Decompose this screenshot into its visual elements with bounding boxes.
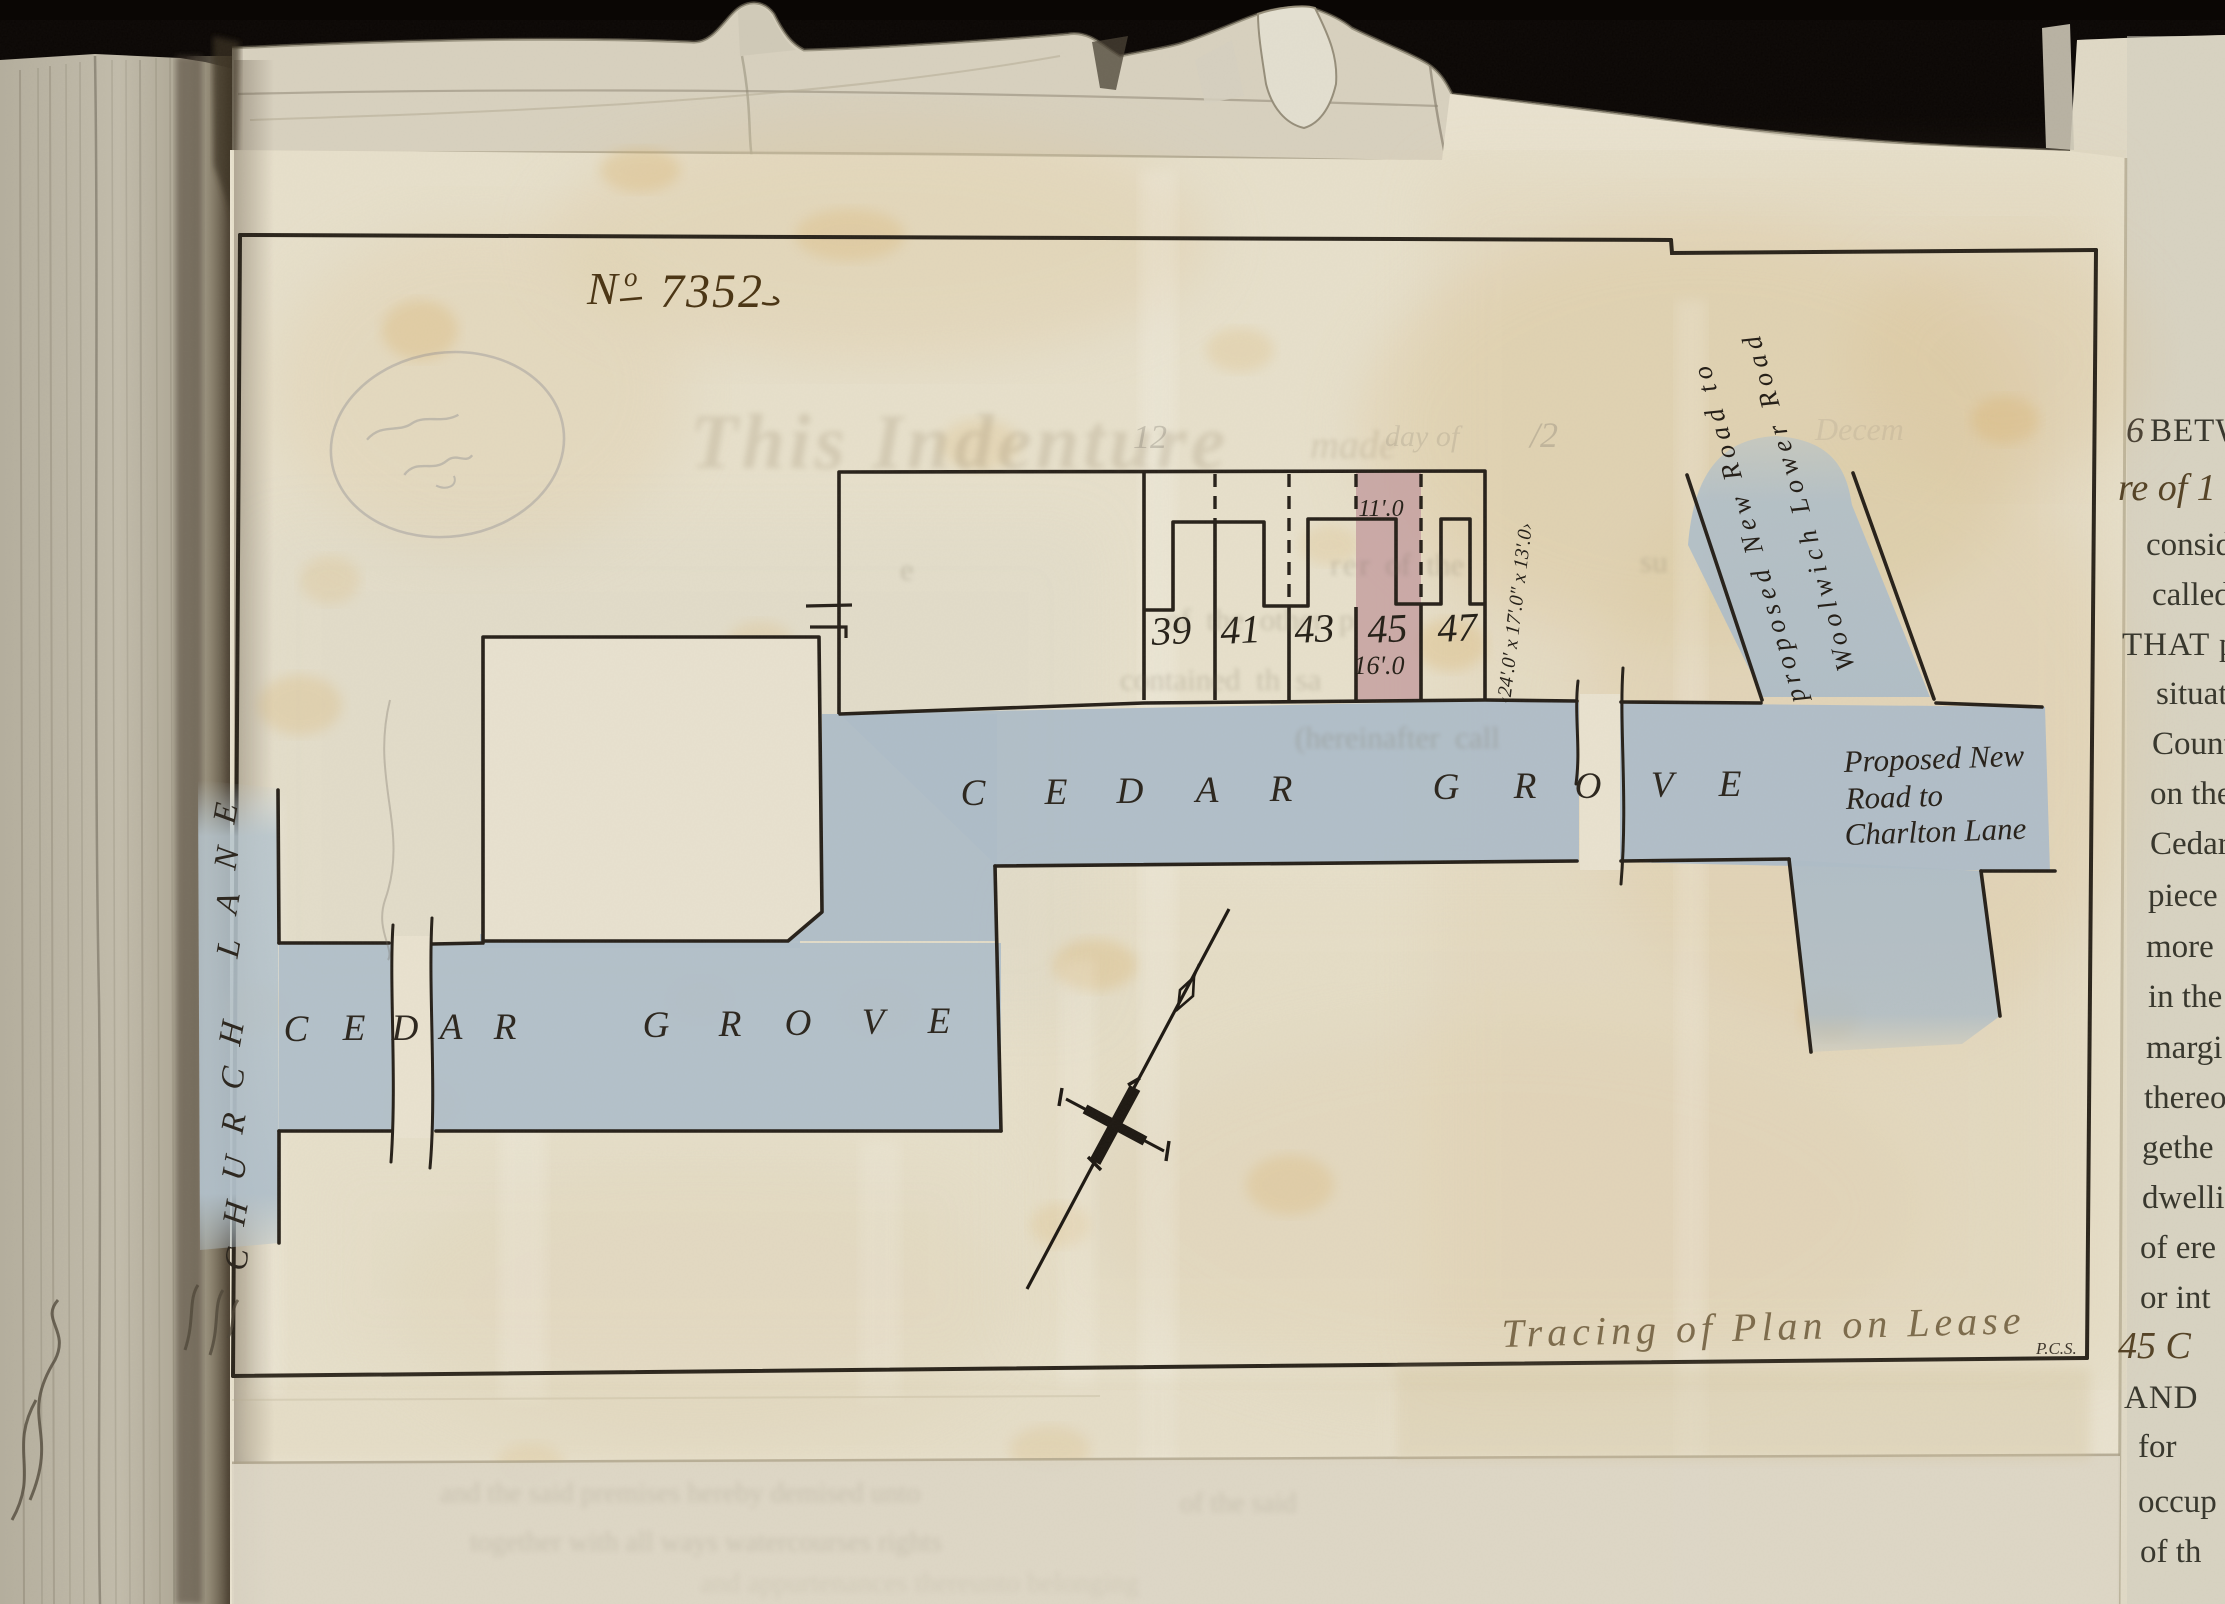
svg-text:dwelli: dwelli: [2142, 1180, 2224, 1216]
svg-text:situate: situate: [2156, 676, 2225, 712]
svg-text:or int: or int: [2140, 1280, 2211, 1316]
svg-text:called: called: [2152, 577, 2225, 613]
svg-text:on the: on the: [2150, 776, 2225, 812]
svg-text:more: more: [2146, 929, 2214, 965]
svg-text:of ere: of ere: [2140, 1230, 2216, 1266]
svg-text:THAT p: THAT p: [2122, 627, 2225, 663]
svg-text:6: 6: [2126, 410, 2144, 450]
svg-text:conside: conside: [2146, 527, 2225, 563]
svg-text:BETW: BETW: [2150, 413, 2225, 449]
svg-text:Count: Count: [2152, 726, 2225, 762]
svg-text:margi: margi: [2146, 1030, 2222, 1066]
svg-text:AND: AND: [2124, 1380, 2199, 1416]
svg-text:re of 1: re of 1: [2118, 467, 2216, 509]
svg-text:thereo: thereo: [2144, 1080, 2225, 1116]
svg-text:for: for: [2138, 1429, 2176, 1465]
svg-text:of th: of th: [2140, 1534, 2202, 1570]
svg-text:gethe: gethe: [2142, 1130, 2213, 1166]
svg-text:occup: occup: [2138, 1484, 2217, 1520]
svg-text:in the: in the: [2148, 979, 2222, 1015]
svg-text:piece: piece: [2148, 878, 2218, 914]
svg-text:45 C: 45 C: [2118, 1325, 2192, 1367]
svg-text:Cedar: Cedar: [2150, 826, 2225, 862]
